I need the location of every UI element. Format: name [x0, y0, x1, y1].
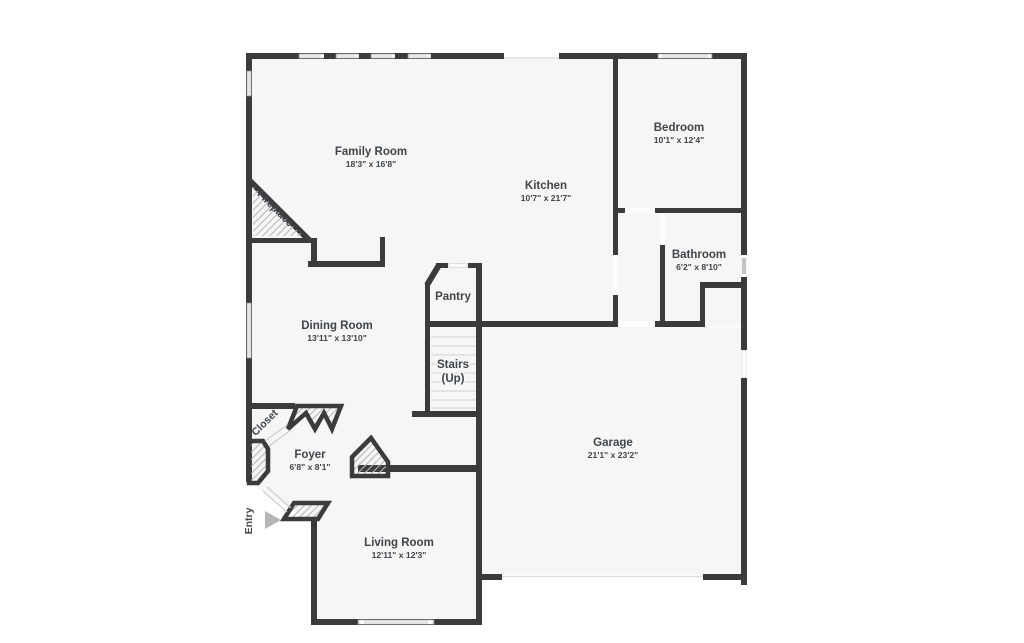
wall-kitchen-bottom — [425, 321, 613, 327]
wall-kitchen-right-stub — [613, 295, 618, 327]
garage-name: Garage — [593, 437, 633, 449]
wall-bathroom-bottom — [700, 282, 747, 288]
window — [299, 54, 323, 59]
floorplan-page: Family Room 18'3" x 16'8" Kitchen 10'7" … — [0, 0, 1024, 643]
wall-garage-bottom-right — [703, 574, 747, 580]
wall-hall-bottom — [655, 321, 705, 327]
window — [247, 303, 252, 358]
window — [358, 620, 434, 625]
window — [408, 54, 430, 59]
window — [658, 54, 712, 59]
room-label-foyer: Foyer 6'8" x 8'1" — [290, 449, 331, 472]
room-label-dining-room: Dining Room 13'11" x 13'10" — [301, 320, 373, 343]
wall-bathroom-notch — [700, 282, 705, 327]
window — [371, 54, 394, 59]
wall-bedroom-left — [613, 59, 618, 255]
room-label-living-room: Living Room 12'11" x 12'3" — [364, 537, 434, 560]
stairs-name: Stairs — [437, 359, 469, 371]
wall-bathroom-left — [660, 245, 665, 327]
bathroom-door-gap — [660, 213, 665, 245]
dining-room-name: Dining Room — [301, 320, 373, 332]
room-label-kitchen: Kitchen 10'7" x 21'7" — [521, 180, 571, 203]
pantry-name: Pantry — [435, 291, 471, 303]
kitchen-name: Kitchen — [525, 180, 567, 192]
window — [336, 54, 358, 59]
kitchen-dims: 10'7" x 21'7" — [521, 193, 571, 203]
window — [247, 71, 252, 96]
living-room-dims: 12'11" x 12'3" — [372, 550, 427, 560]
entry-label: Entry — [243, 507, 255, 534]
garage-dims: 21'1" x 23'2" — [588, 450, 638, 460]
floor-stairs-column — [428, 263, 480, 415]
room-label-bedroom: Bedroom 10'1" x 12'4" — [654, 122, 704, 145]
wall-exterior-left — [246, 53, 252, 482]
wall-bedroom-bottom-a — [613, 208, 625, 213]
family-room-dims: 18'3" x 16'8" — [346, 159, 396, 169]
living-room-name: Living Room — [364, 537, 434, 549]
bedroom-door-gap — [625, 208, 655, 213]
bathroom-window — [742, 258, 746, 274]
wall-living-left — [311, 518, 317, 625]
wall-bedroom-bottom-b — [655, 208, 747, 213]
garage-door-gap — [618, 321, 655, 327]
bedroom-name: Bedroom — [654, 122, 704, 134]
bathroom-name: Bathroom — [672, 249, 726, 261]
wall-exterior-right — [741, 53, 747, 585]
bathroom-dims: 6'2" x 8'10" — [676, 262, 722, 272]
entry-side-panel — [249, 441, 268, 483]
wall-stairs-bottom — [412, 411, 476, 417]
wall-pantry-stairs-left — [425, 283, 430, 417]
entry-door-icon — [284, 503, 328, 519]
room-label-pantry: Pantry — [435, 291, 471, 303]
family-room-name: Family Room — [335, 146, 407, 158]
wall-dining-divider — [308, 261, 385, 267]
wall-stairs-living-right — [476, 263, 482, 625]
dining-room-dims: 13'11" x 13'10" — [307, 333, 367, 343]
kitchen-hall-opening — [613, 255, 618, 295]
foyer-name: Foyer — [294, 449, 326, 461]
bedroom-dims: 10'1" x 12'4" — [654, 135, 704, 145]
foyer-dims: 6'8" x 8'1" — [290, 462, 331, 472]
room-label-garage: Garage 21'1" x 23'2" — [588, 437, 638, 460]
stairs-direction: (Up) — [442, 373, 465, 385]
room-label-bathroom: Bathroom 6'2" x 8'10" — [672, 249, 726, 272]
floorplan-canvas: Family Room 18'3" x 16'8" Kitchen 10'7" … — [0, 0, 1024, 643]
wall-divider-stub — [380, 237, 385, 267]
